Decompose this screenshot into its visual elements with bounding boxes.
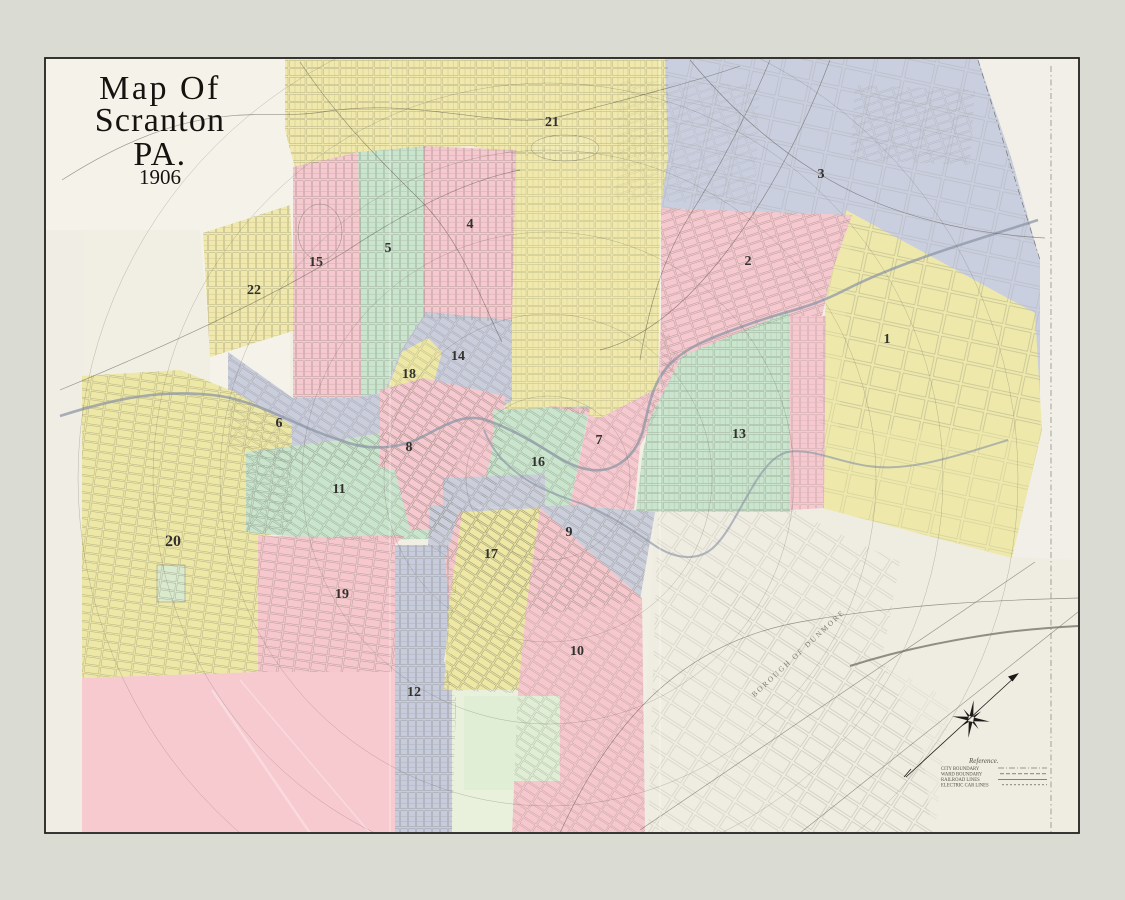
svg-text:16: 16 [531, 455, 545, 470]
svg-text:22: 22 [247, 283, 261, 298]
svg-text:2: 2 [745, 254, 752, 269]
svg-text:1: 1 [884, 332, 891, 347]
svg-text:3: 3 [818, 167, 825, 182]
svg-text:12: 12 [407, 685, 421, 700]
svg-text:9: 9 [566, 525, 573, 540]
svg-text:8: 8 [406, 440, 413, 455]
svg-text:ELECTRIC CAR LINES: ELECTRIC CAR LINES [941, 784, 989, 789]
svg-text:10: 10 [570, 644, 584, 659]
svg-text:11: 11 [332, 482, 345, 497]
svg-text:4: 4 [467, 217, 474, 232]
svg-text:7: 7 [596, 433, 603, 448]
svg-text:Scranton: Scranton [95, 102, 225, 139]
svg-text:21: 21 [545, 115, 559, 130]
svg-text:1906: 1906 [139, 165, 181, 189]
svg-text:13: 13 [732, 427, 746, 442]
svg-text:15: 15 [309, 255, 323, 270]
svg-text:5: 5 [385, 241, 392, 256]
svg-text:18: 18 [402, 367, 416, 382]
svg-text:14: 14 [451, 349, 465, 364]
svg-text:20: 20 [165, 533, 181, 550]
svg-text:WARD BOUNDARY: WARD BOUNDARY [941, 773, 983, 778]
svg-text:6: 6 [276, 416, 283, 431]
svg-text:CITY BOUNDARY: CITY BOUNDARY [941, 767, 980, 772]
svg-text:RAILROAD LINES: RAILROAD LINES [941, 778, 980, 783]
svg-text:Reference.: Reference. [968, 757, 999, 765]
svg-text:17: 17 [484, 547, 498, 562]
svg-text:19: 19 [335, 587, 349, 602]
